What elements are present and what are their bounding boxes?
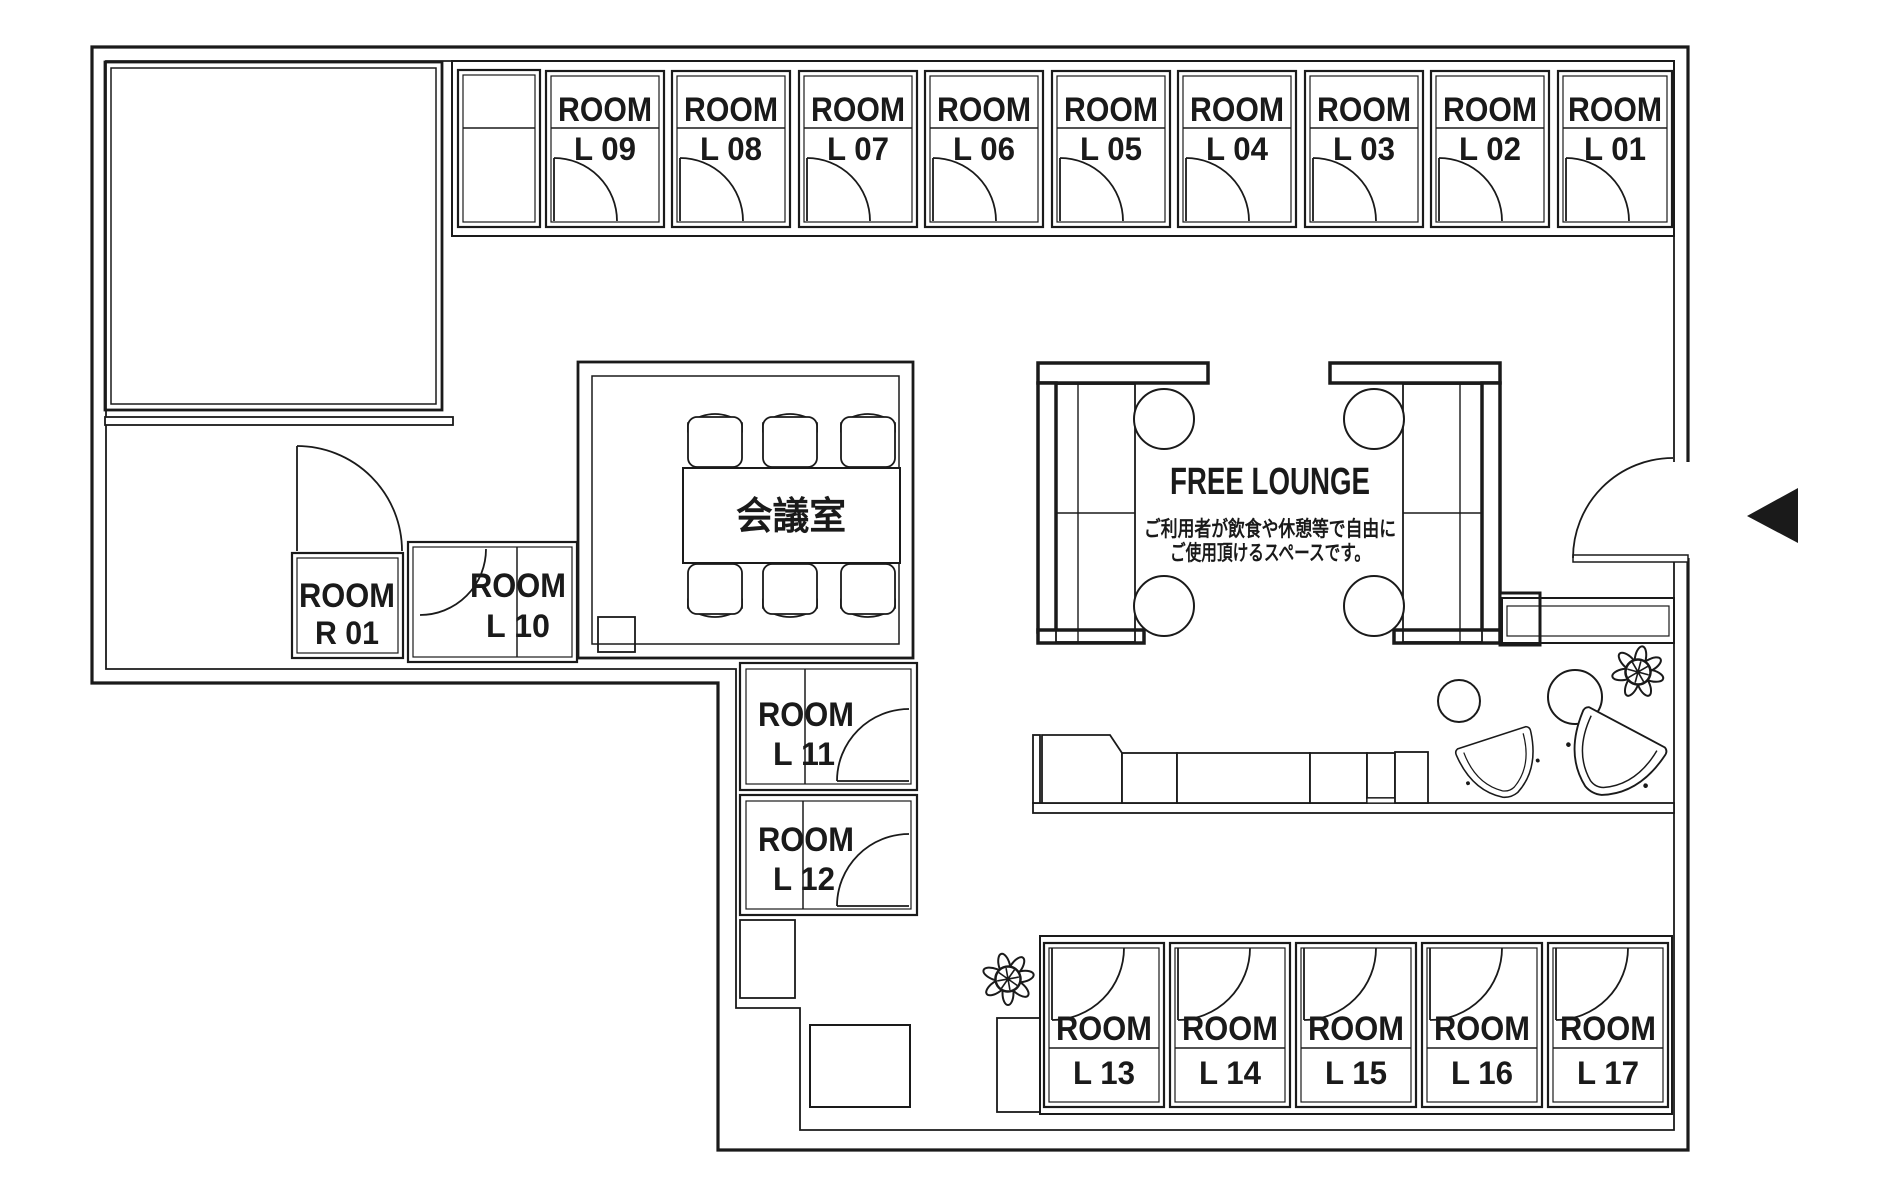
room-label: ROOM (758, 821, 854, 859)
plant (1606, 640, 1670, 705)
room-number: L 11 (773, 736, 835, 772)
round-table (1438, 680, 1480, 722)
counter-cap (1500, 593, 1540, 645)
round-table (1344, 576, 1404, 636)
meeting-room: 会議室 (578, 362, 913, 658)
meeting-chair (841, 414, 895, 467)
room-label: ROOM (937, 91, 1031, 129)
counter-desk (1395, 752, 1428, 803)
room-number: R 01 (315, 615, 379, 651)
entrance-arrow-icon (1747, 488, 1798, 543)
room-number: L 15 (1325, 1055, 1387, 1091)
room-label: ROOM (1056, 1010, 1152, 1048)
tub-chair (1455, 726, 1548, 809)
room-number: L 12 (773, 861, 835, 897)
door-arc (1439, 158, 1502, 221)
counter-desk (1177, 753, 1310, 803)
booth-panel (1038, 630, 1144, 643)
entrance (1573, 458, 1798, 562)
door-arc (933, 158, 996, 221)
room-l17: ROOM L 17 (1548, 943, 1668, 1107)
meeting-chair (763, 414, 817, 467)
room-label: ROOM (1317, 91, 1411, 129)
room-label: ROOM (811, 91, 905, 129)
room-number: L 02 (1459, 131, 1521, 167)
room-number: L 04 (1206, 131, 1268, 167)
door-arc (1060, 158, 1123, 221)
floor-plan: ROOM L 09 ROOM L 08 ROOM L 07 ROOM L 06 (0, 0, 1890, 1188)
door-arc (1313, 158, 1376, 221)
top-cabinet (458, 70, 540, 227)
lounge-title: FREE LOUNGE (1170, 461, 1370, 503)
room-label: ROOM (1568, 91, 1662, 129)
right-wall-counter (1500, 593, 1674, 645)
room-label: ROOM (1064, 91, 1158, 129)
room-l11: ROOM L 11 (740, 663, 917, 790)
meeting-room-cabinet (598, 617, 635, 652)
meeting-chair (763, 564, 817, 617)
bottom-left-fixtures (740, 920, 1040, 1112)
room-l02: ROOM L 02 (1431, 71, 1549, 227)
room-l03: ROOM L 03 (1305, 71, 1423, 227)
counter-desk (1367, 798, 1395, 803)
dividing-wall (1033, 735, 1040, 803)
room-l04: ROOM L 04 (1178, 71, 1296, 227)
door-arc (680, 158, 743, 221)
room-label: ROOM (758, 696, 854, 734)
lounge-subtitle-1: ご利用者が飲食や休憩等で自由に (1144, 517, 1396, 541)
lounge-subtitle-2: ご使用頂けるスペースです。 (1170, 541, 1370, 565)
storage-box (810, 1025, 910, 1107)
room-l05: ROOM L 05 (1052, 71, 1170, 227)
room-number: L 05 (1080, 131, 1142, 167)
door-arc (1566, 158, 1629, 221)
room-label: ROOM (1182, 1010, 1278, 1048)
door-arc (807, 158, 870, 221)
room-label: ROOM (1443, 91, 1537, 129)
room-l15: ROOM L 15 (1296, 943, 1416, 1107)
room-l12: ROOM L 12 (740, 795, 917, 915)
room-number: L 14 (1199, 1055, 1261, 1091)
top-room-block: ROOM L 09 ROOM L 08 ROOM L 07 ROOM L 06 (452, 61, 1674, 236)
room-label: ROOM (684, 91, 778, 129)
room-number: L 10 (486, 608, 550, 644)
counter-desk (1042, 735, 1122, 803)
counter-desk (1367, 753, 1395, 798)
lounge-booth-left (1038, 363, 1208, 643)
entrance-door-leaf (1573, 555, 1688, 562)
room-number: L 17 (1577, 1055, 1639, 1091)
room-label: ROOM (558, 91, 652, 129)
room-l16: ROOM L 16 (1422, 943, 1542, 1107)
meeting-chair (688, 414, 742, 467)
wall-stub (105, 417, 453, 425)
room-r01: ROOM R 01 (292, 446, 403, 658)
booth-panel (1482, 383, 1500, 632)
door-arc (297, 446, 402, 551)
bottom-room-block: ROOM L 13 ROOM L 14 ROOM L 15 ROOM L 16 (1040, 936, 1672, 1114)
room-l08: ROOM L 08 (672, 71, 790, 227)
entrance-door-arc (1573, 458, 1673, 558)
round-table (1134, 576, 1194, 636)
room-label: ROOM (1308, 1010, 1404, 1048)
room-number: L 07 (827, 131, 889, 167)
counter-desk (1310, 753, 1367, 803)
room-number: L 06 (953, 131, 1015, 167)
room-number: L 03 (1333, 131, 1395, 167)
room-number: L 01 (1584, 131, 1646, 167)
cabinet (740, 920, 795, 998)
room-label: ROOM (1434, 1010, 1530, 1048)
large-room-top-left (105, 62, 453, 425)
room-number: L 16 (1451, 1055, 1513, 1091)
meeting-chair (688, 564, 742, 617)
room-label: ROOM (1190, 91, 1284, 129)
meeting-chair (841, 564, 895, 617)
booth-panel (1330, 363, 1500, 383)
booth-panel (1038, 363, 1208, 383)
room-l09: ROOM L 09 (546, 71, 664, 227)
door-arc (1186, 158, 1249, 221)
door-arc (554, 158, 617, 221)
round-table (1344, 389, 1404, 449)
room-l07: ROOM L 07 (799, 71, 917, 227)
room-label: ROOM (299, 577, 395, 615)
lounge-booth-right (1330, 363, 1500, 643)
room-label: ROOM (1560, 1010, 1656, 1048)
counter-desk (1122, 753, 1177, 803)
room-l10: ROOM L 10 (408, 542, 577, 662)
room-number: L 08 (700, 131, 762, 167)
room-label: ROOM (470, 567, 566, 605)
room-l06: ROOM L 06 (925, 71, 1043, 227)
booth-panel (1394, 630, 1500, 643)
room-l14: ROOM L 14 (1170, 943, 1290, 1107)
round-table (1134, 389, 1194, 449)
free-lounge: FREE LOUNGE ご利用者が飲食や休憩等で自由に ご使用頂けるスペースです… (1038, 363, 1500, 643)
lounge-corner-seating (1438, 640, 1670, 814)
floor-plan-canvas: ROOM L 09 ROOM L 08 ROOM L 07 ROOM L 06 (0, 0, 1890, 1188)
room-number: L 13 (1073, 1055, 1135, 1091)
booth-panel (1038, 383, 1056, 632)
cabinet (997, 1018, 1040, 1112)
room-l01: ROOM L 01 (1558, 71, 1672, 227)
room-number: L 09 (574, 131, 636, 167)
plant (978, 949, 1038, 1010)
room-l13: ROOM L 13 (1044, 943, 1164, 1107)
dividing-wall (1033, 803, 1674, 813)
meeting-room-label: 会議室 (736, 495, 846, 538)
